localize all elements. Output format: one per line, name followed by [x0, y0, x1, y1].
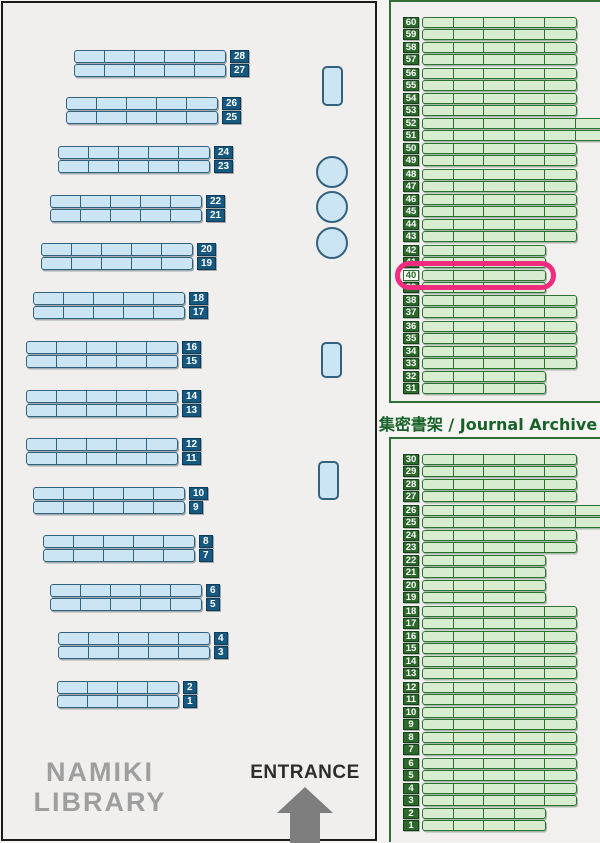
archive-tag-37: 37 — [403, 307, 419, 318]
archive-shelf-pair: 2423 — [403, 530, 600, 553]
arrow-stem — [290, 813, 320, 843]
shelf-14: 14 — [26, 390, 201, 403]
shelf-cell — [423, 695, 454, 704]
shelf-cell — [515, 531, 546, 540]
archive-shelf-body — [422, 270, 546, 281]
shelf-cell — [484, 784, 515, 793]
shelf-cell — [111, 210, 141, 221]
shelf-cell — [484, 733, 515, 742]
shelf-cell — [117, 356, 147, 367]
shelf-cell — [515, 657, 546, 666]
shelf-cell — [179, 161, 209, 172]
shelf-pair-14-13: 1413 — [26, 390, 201, 417]
shelf-cell — [454, 695, 485, 704]
archive-shelf-body — [422, 346, 577, 357]
shelf-cell — [515, 283, 546, 292]
shelf-2: 2 — [57, 681, 197, 694]
archive-shelf-40: 40 — [403, 270, 600, 281]
archive-shelf-pair: 2221 — [403, 555, 600, 578]
archive-shelf-body — [422, 466, 577, 477]
shelf-cell — [454, 207, 485, 216]
shelf-cell — [454, 518, 485, 527]
shelf-cell — [58, 696, 88, 707]
shelf-tag-3: 3 — [214, 646, 228, 659]
shelf-pair-10-9: 109 — [33, 487, 208, 514]
shelf-tag-15: 15 — [182, 355, 201, 368]
shelf-cell — [423, 492, 454, 501]
shelf-13: 13 — [26, 404, 201, 417]
shelf-cell — [27, 356, 57, 367]
shelf-cell — [423, 18, 454, 27]
shelf-cell — [119, 161, 149, 172]
shelf-cell — [127, 112, 157, 123]
shelf-cell — [454, 334, 485, 343]
library-title-line1: NAMIKI — [14, 757, 186, 787]
archive-shelf-body — [422, 219, 577, 230]
archive-shelf-body — [422, 257, 546, 268]
shelf-cell — [423, 94, 454, 103]
shelf-cell — [515, 258, 546, 267]
shelf-cell — [149, 147, 179, 158]
shelf-body — [57, 681, 179, 694]
archive-tag-18: 18 — [403, 606, 419, 617]
shelf-body — [50, 209, 202, 222]
archive-tag-21: 21 — [403, 567, 419, 578]
archive-shelf-body — [422, 295, 577, 306]
shelf-body — [74, 64, 226, 77]
archive-tag-29: 29 — [403, 466, 419, 477]
archive-shelf-pair: 3029 — [403, 454, 600, 477]
shelf-11: 11 — [26, 452, 201, 465]
shelf-cell — [454, 220, 485, 229]
archive-shelf-pair: 21 — [403, 808, 600, 831]
round-table — [316, 156, 348, 188]
shelf-cell — [484, 182, 515, 191]
shelf-cell — [42, 244, 72, 255]
archive-shelf-3: 3 — [403, 795, 600, 806]
shelf-cell — [454, 733, 485, 742]
shelf-cell — [67, 98, 97, 109]
shelf-cell — [454, 30, 485, 39]
shelf-4: 4 — [58, 632, 228, 645]
archive-tag-6: 6 — [403, 758, 419, 769]
shelf-cell — [484, 69, 515, 78]
archive-shelf-pair: 43 — [403, 783, 600, 806]
archive-shelf-body — [422, 542, 577, 553]
archive-tag-47: 47 — [403, 181, 419, 192]
shelf-cell — [515, 372, 546, 381]
archive-tag-32: 32 — [403, 371, 419, 382]
shelf-body — [57, 695, 179, 708]
shelf-tag-26: 26 — [222, 97, 241, 110]
shelf-cell — [484, 745, 515, 754]
shelf-cell — [515, 695, 546, 704]
shelf-cell — [423, 207, 454, 216]
shelf-cell — [124, 293, 154, 304]
shelf-body — [26, 341, 178, 354]
archive-shelf-32: 32 — [403, 371, 600, 382]
shelf-cell — [119, 633, 149, 644]
shelf-body — [58, 160, 210, 173]
shelf-body — [43, 549, 195, 562]
shelf-cell — [545, 182, 576, 191]
shelf-cell — [148, 696, 178, 707]
shelf-cell — [44, 536, 74, 547]
shelf-cell — [454, 720, 485, 729]
archive-shelf-pair: 3635 — [403, 321, 600, 344]
shelf-cell — [423, 347, 454, 356]
shelf-cell — [27, 439, 57, 450]
archive-shelf-pair: 109 — [403, 707, 600, 730]
shelf-cell — [484, 531, 515, 540]
shelf-cell — [454, 372, 485, 381]
shelf-cell — [119, 147, 149, 158]
shelf-cell — [149, 633, 179, 644]
archive-shelf-pair: 2827 — [403, 479, 600, 502]
shelf-cell — [454, 593, 485, 602]
shelf-cell — [423, 796, 454, 805]
archive-shelf-pair: 5251 — [403, 118, 600, 141]
shelf-cell — [515, 492, 546, 501]
archive-shelf-46: 46 — [403, 194, 600, 205]
shelf-cell — [515, 232, 546, 241]
journal-archive-label: 集密書架 / Journal Archive — [376, 411, 600, 435]
shelf-cell — [147, 405, 177, 416]
archive-shelf-29: 29 — [403, 466, 600, 477]
shelf-cell — [484, 372, 515, 381]
archive-tag-51: 51 — [403, 130, 419, 141]
shelf-cell — [27, 405, 57, 416]
shelf-cell — [164, 536, 194, 547]
shelf-cell — [545, 518, 576, 527]
shelf-cell — [423, 232, 454, 241]
archive-tag-12: 12 — [403, 682, 419, 693]
shelf-tag-13: 13 — [182, 404, 201, 417]
shelf-cell — [423, 568, 454, 577]
shelf-cell — [545, 669, 576, 678]
shelf-cell — [454, 531, 485, 540]
shelf-cell — [454, 271, 485, 280]
shelf-7: 7 — [43, 549, 213, 562]
shelf-cell — [484, 683, 515, 692]
archive-shelf-50: 50 — [403, 143, 600, 154]
shelf-cell — [423, 322, 454, 331]
shelf-cell — [515, 182, 546, 191]
shelf-cell — [484, 695, 515, 704]
shelf-cell — [165, 65, 195, 76]
shelf-body — [33, 292, 185, 305]
shelf-cell — [545, 232, 576, 241]
shelf-cell — [27, 342, 57, 353]
archive-shelf-body — [422, 54, 577, 65]
archive-shelf-body — [422, 631, 577, 642]
shelf-cell — [454, 384, 485, 393]
shelf-cell — [94, 293, 124, 304]
shelf-cell — [148, 682, 178, 693]
shelf-cell — [515, 156, 546, 165]
shelf-cell — [515, 43, 546, 52]
shelf-tag-1: 1 — [183, 695, 197, 708]
shelf-cell — [545, 543, 576, 552]
shelf-cell — [454, 94, 485, 103]
shelf-cell — [545, 644, 576, 653]
archive-tag-40: 40 — [403, 270, 419, 281]
archive-tag-14: 14 — [403, 656, 419, 667]
shelf-cell — [454, 644, 485, 653]
shelf-cell — [75, 51, 105, 62]
shelf-18: 18 — [33, 292, 208, 305]
shelf-cell — [545, 695, 576, 704]
shelf-cell — [67, 112, 97, 123]
shelf-cell — [515, 246, 546, 255]
shelf-cell — [57, 342, 87, 353]
archive-tag-20: 20 — [403, 580, 419, 591]
shelf-cell — [423, 467, 454, 476]
shelf-cell — [454, 347, 485, 356]
archive-shelf-body — [422, 155, 577, 166]
shelf-cell — [545, 733, 576, 742]
shelf-cell — [484, 632, 515, 641]
archive-shelf-8: 8 — [403, 732, 600, 743]
archive-shelf-body — [422, 333, 577, 344]
archive-shelf-15: 15 — [403, 643, 600, 654]
round-table — [316, 227, 348, 259]
archive-tag-34: 34 — [403, 346, 419, 357]
shelf-cell — [423, 657, 454, 666]
shelf-cell — [484, 170, 515, 179]
archive-tag-16: 16 — [403, 631, 419, 642]
shelf-cell — [515, 568, 546, 577]
shelf-1: 1 — [57, 695, 197, 708]
library-title-line2: LIBRARY — [14, 787, 186, 817]
shelf-pair-26-25: 2625 — [66, 97, 241, 124]
shelf-cell — [454, 119, 485, 128]
archive-shelf-pair: 4443 — [403, 219, 600, 242]
shelf-tag-24: 24 — [214, 146, 233, 159]
shelf-cell — [545, 308, 576, 317]
shelf-cell — [75, 65, 105, 76]
archive-shelf-54: 54 — [403, 93, 600, 104]
shelf-body — [41, 243, 193, 256]
archive-shelf-body — [422, 130, 600, 141]
shelf-cell — [515, 543, 546, 552]
archive-shelf-49: 49 — [403, 155, 600, 166]
shelf-cell — [545, 492, 576, 501]
shelf-cell — [484, 258, 515, 267]
shelf-cell — [454, 296, 485, 305]
shelf-22: 22 — [50, 195, 225, 208]
archive-shelf-body — [422, 371, 546, 382]
archive-shelf-body — [422, 530, 577, 541]
archive-shelf-44: 44 — [403, 219, 600, 230]
shelf-cell — [64, 488, 94, 499]
shelf-cell — [484, 669, 515, 678]
shelf-body — [50, 598, 202, 611]
shelf-cell — [484, 543, 515, 552]
shelf-cell — [57, 439, 87, 450]
shelf-cell — [545, 55, 576, 64]
archive-shelf-body — [422, 491, 577, 502]
archive-shelf-53: 53 — [403, 105, 600, 116]
archive-tag-35: 35 — [403, 333, 419, 344]
archive-shelf-25: 25 — [403, 517, 600, 528]
archive-tag-31: 31 — [403, 383, 419, 394]
shelf-tag-17: 17 — [189, 306, 208, 319]
archive-tag-7: 7 — [403, 744, 419, 755]
archive-shelf-body — [422, 783, 577, 794]
shelf-cell — [57, 453, 87, 464]
shelf-cell — [118, 682, 148, 693]
shelf-pair-4-3: 43 — [58, 632, 228, 659]
shelf-cell — [515, 632, 546, 641]
archive-tag-41: 41 — [403, 257, 419, 268]
shelf-20: 20 — [41, 243, 216, 256]
shelf-cell — [423, 543, 454, 552]
library-title: NAMIKI LIBRARY — [14, 757, 186, 817]
shelf-cell — [545, 18, 576, 27]
archive-shelf-34: 34 — [403, 346, 600, 357]
round-table — [316, 191, 348, 223]
archive-tag-27: 27 — [403, 491, 419, 502]
archive-shelf-body — [422, 169, 577, 180]
shelf-25: 25 — [66, 111, 241, 124]
archive-shelf-pair: 5049 — [403, 143, 600, 166]
shelf-cell — [515, 308, 546, 317]
shelf-tag-20: 20 — [197, 243, 216, 256]
shelf-cell — [545, 506, 576, 515]
shelf-cell — [423, 144, 454, 153]
shelf-cell — [132, 258, 162, 269]
shelf-cell — [484, 308, 515, 317]
shelf-body — [43, 535, 195, 548]
shelf-cell — [423, 384, 454, 393]
shelf-cell — [195, 51, 225, 62]
shelf-cell — [454, 69, 485, 78]
shelf-cell — [454, 81, 485, 90]
archive-shelf-pair: 1413 — [403, 656, 600, 679]
shelf-cell — [111, 585, 141, 596]
shelf-cell — [545, 467, 576, 476]
shelf-cell — [515, 809, 546, 818]
shelf-cell — [484, 296, 515, 305]
shelf-body — [74, 50, 226, 63]
shelf-cell — [545, 322, 576, 331]
archive-tag-54: 54 — [403, 93, 419, 104]
shelf-cell — [423, 182, 454, 191]
archive-shelf-14: 14 — [403, 656, 600, 667]
shelf-cell — [42, 258, 72, 269]
shelf-cell — [423, 683, 454, 692]
shelf-cell — [515, 18, 546, 27]
archive-shelf-body — [422, 820, 546, 831]
shelf-cell — [117, 391, 147, 402]
shelf-cell — [515, 506, 546, 515]
shelf-cell — [423, 455, 454, 464]
shelf-cell — [81, 210, 111, 221]
shelf-cell — [423, 531, 454, 540]
shelf-cell — [454, 106, 485, 115]
archive-shelf-pair: 1211 — [403, 682, 600, 705]
archive-shelf-11: 11 — [403, 694, 600, 705]
shelf-cell — [484, 708, 515, 717]
shelf-cell — [179, 147, 209, 158]
shelf-cell — [423, 283, 454, 292]
shelf-cell — [454, 809, 485, 818]
shelf-cell — [423, 296, 454, 305]
shelf-cell — [454, 156, 485, 165]
shelf-cell — [454, 308, 485, 317]
shelf-cell — [515, 170, 546, 179]
archive-shelf-1: 1 — [403, 820, 600, 831]
shelf-body — [26, 355, 178, 368]
shelf-cell — [484, 455, 515, 464]
shelf-body — [26, 438, 178, 451]
archive-shelf-body — [422, 555, 546, 566]
shelf-cell — [545, 632, 576, 641]
shelf-body — [26, 452, 178, 465]
archive-tag-59: 59 — [403, 29, 419, 40]
shelf-cell — [484, 384, 515, 393]
archive-shelf-body — [422, 307, 577, 318]
shelf-27: 27 — [74, 64, 249, 77]
shelf-cell — [454, 455, 485, 464]
shelf-cell — [515, 708, 546, 717]
archive-shelf-body — [422, 454, 577, 465]
archive-shelf-body — [422, 383, 546, 394]
shelf-cell — [423, 733, 454, 742]
shelf-cell — [515, 55, 546, 64]
shelf-cell — [423, 195, 454, 204]
archive-tag-44: 44 — [403, 219, 419, 230]
archive-shelf-41: 41 — [403, 257, 600, 268]
shelf-cell — [545, 195, 576, 204]
shelf-cell — [484, 593, 515, 602]
shelf-cell — [171, 599, 201, 610]
archive-shelf-36: 36 — [403, 321, 600, 332]
archive-shelf-body — [422, 206, 577, 217]
archive-shelf-body — [422, 744, 577, 755]
shelf-cell — [484, 195, 515, 204]
shelf-cell — [484, 619, 515, 628]
archive-shelf-45: 45 — [403, 206, 600, 217]
shelf-cell — [34, 502, 64, 513]
shelf-cell — [94, 488, 124, 499]
shelf-cell — [423, 106, 454, 115]
shelf-cell — [179, 633, 209, 644]
shelf-cell — [454, 144, 485, 153]
archive-shelf-9: 9 — [403, 719, 600, 730]
archive-tag-17: 17 — [403, 618, 419, 629]
shelf-cell — [135, 65, 165, 76]
shelf-cell — [423, 556, 454, 565]
shelf-cell — [165, 51, 195, 62]
shelf-cell — [154, 307, 184, 318]
shelf-tag-5: 5 — [206, 598, 220, 611]
shelf-cell — [484, 657, 515, 666]
shelf-cell — [484, 821, 515, 830]
shelf-cell — [119, 647, 149, 658]
shelf-cell — [423, 119, 454, 128]
shelf-cell — [576, 131, 600, 140]
archive-tag-1: 1 — [403, 820, 419, 831]
shelf-cell — [171, 210, 201, 221]
shelf-tag-8: 8 — [199, 535, 213, 548]
shelf-cell — [57, 356, 87, 367]
archive-shelf-body — [422, 643, 577, 654]
shelf-cell — [484, 334, 515, 343]
archive-tag-46: 46 — [403, 194, 419, 205]
archive-shelf-55: 55 — [403, 80, 600, 91]
